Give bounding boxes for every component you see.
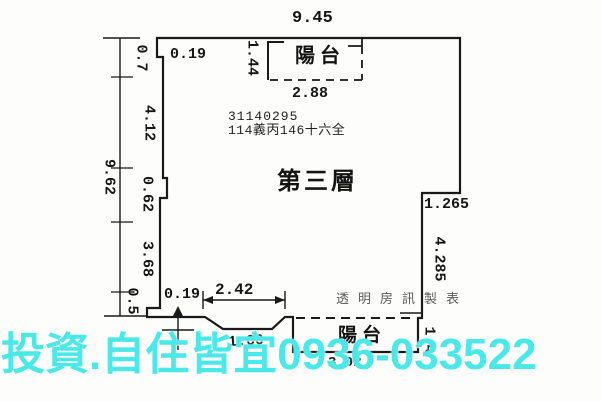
dim-left-seg-4: 3.68 [140,241,155,277]
dim-right-step: 1.265 [424,197,469,212]
dim-left-seg-1: 0.7 [134,44,149,71]
dim-left-seg-3: 0.62 [140,176,155,212]
dim-bottom-span: 2.42 [215,282,253,298]
arrow-up-icon [173,306,183,316]
dim-left-seg-5: 0.5 [125,287,140,314]
arrow-left-icon [203,296,213,304]
floorplan-scan: 9.45 0.19 1.44 2.88 0.7 4.12 9.62 0.62 3… [0,0,602,401]
ad-watermark: 投資.自住皆宜0936-033522 [1,333,602,377]
dim-left-seg-2: 4.12 [142,105,157,141]
dim-top-left-offset: 0.19 [170,47,206,62]
top-balcony-left-edge [268,42,284,80]
top-balcony-label: 陽台 [295,46,345,66]
top-balcony-right-corner [348,38,362,46]
floor-title: 第三層 [277,170,358,194]
lot-number: 114義丙146十六全 [228,124,345,137]
dim-top-width: 9.45 [292,10,333,27]
producer-watermark: 透明房訊製表 [336,292,468,305]
dim-bottom-offset: 0.19 [164,287,200,302]
serial-number: 31140295 [228,110,298,123]
dim-right-side: 4.285 [432,236,447,281]
dim-top-balcony-width: 2.88 [292,86,328,101]
dim-left-total: 9.62 [102,159,117,195]
dim-top-balcony-depth: 1.44 [245,40,260,76]
arrow-right-icon [275,296,285,304]
